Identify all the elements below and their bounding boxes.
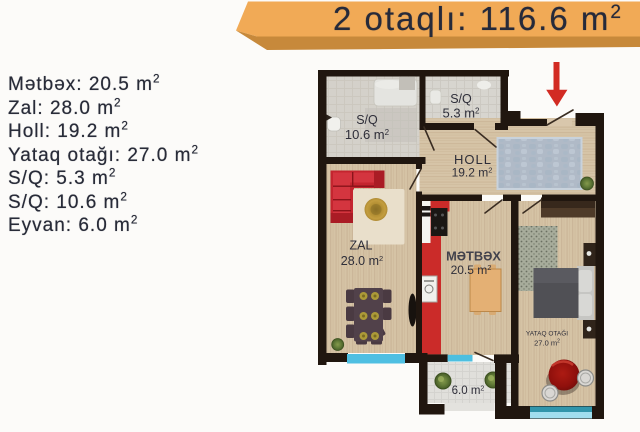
svg-text:S/Q: S/Q [450,92,472,106]
svg-text:28.0 m2: 28.0 m2 [341,254,383,268]
svg-text:MƏTBƏX: MƏTBƏX [446,249,501,264]
svg-text:27.0 m2: 27.0 m2 [534,339,560,348]
svg-text:ZAL: ZAL [350,239,373,253]
svg-text:YATAQ OTAĞI: YATAQ OTAĞI [526,329,568,338]
svg-text:5.3 m2: 5.3 m2 [443,106,481,121]
svg-text:20.5 m2: 20.5 m2 [451,263,492,277]
svg-text:S/Q: S/Q [356,113,378,127]
svg-text:6.0 m2: 6.0 m2 [452,385,485,397]
svg-text:19.2 m2: 19.2 m2 [452,166,493,180]
svg-text:10.6 m2: 10.6 m2 [345,127,390,142]
